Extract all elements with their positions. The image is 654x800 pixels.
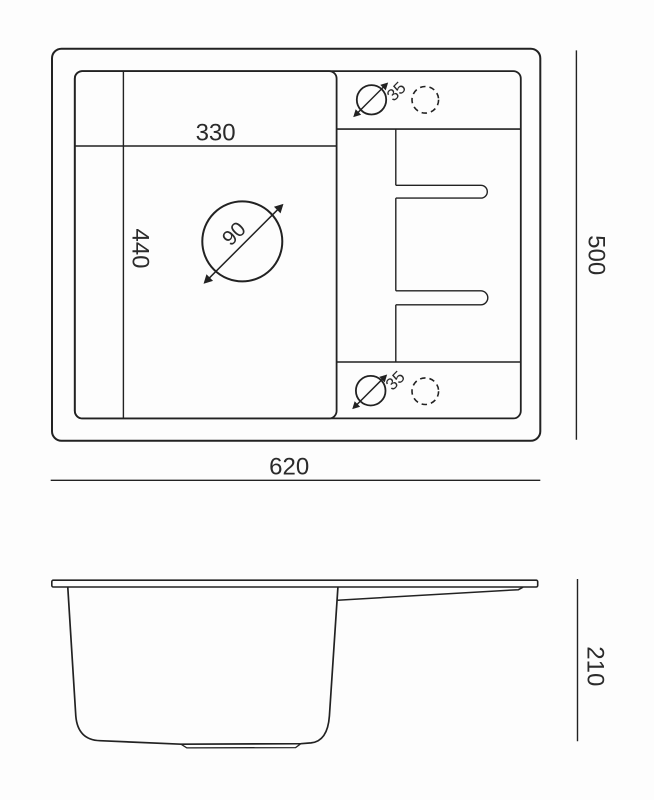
svg-text:210: 210 bbox=[582, 646, 609, 686]
svg-text:620: 620 bbox=[269, 453, 309, 480]
svg-text:440: 440 bbox=[127, 228, 154, 268]
svg-text:330: 330 bbox=[196, 119, 236, 146]
svg-text:500: 500 bbox=[583, 235, 610, 275]
